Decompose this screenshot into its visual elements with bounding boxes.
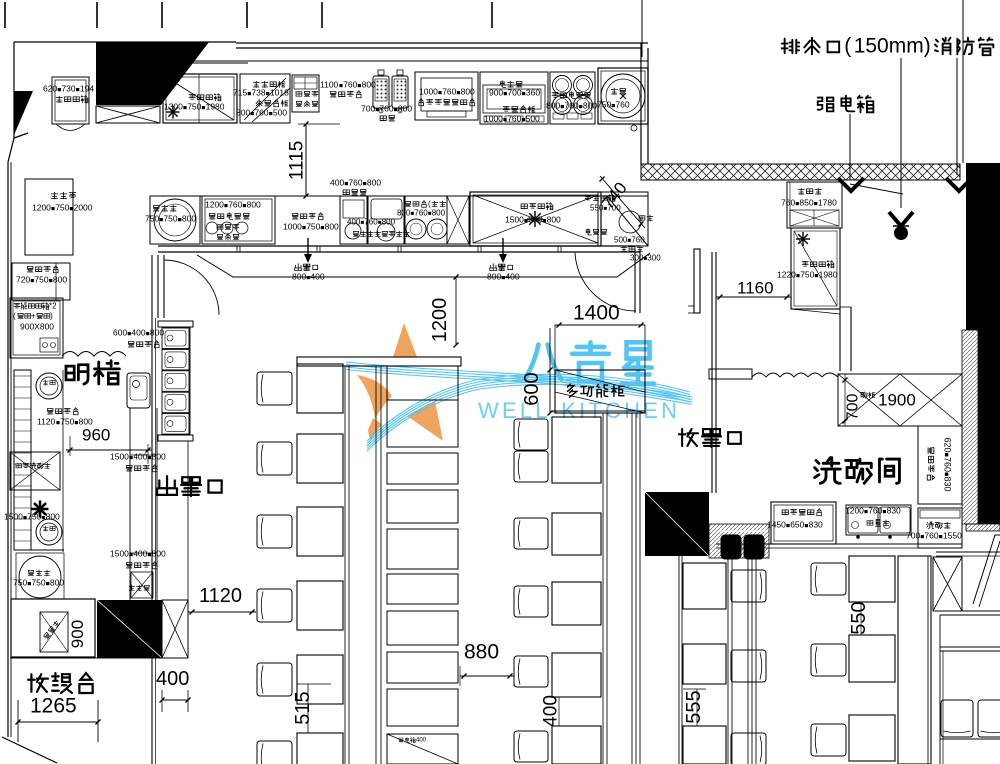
svg-text:760: 760 bbox=[343, 80, 357, 90]
svg-text:400: 400 bbox=[156, 668, 189, 690]
svg-text:760: 760 bbox=[781, 198, 795, 208]
svg-text:760: 760 bbox=[348, 178, 362, 188]
svg-text:400: 400 bbox=[133, 452, 147, 462]
svg-text:760: 760 bbox=[379, 104, 393, 114]
svg-text:1100: 1100 bbox=[320, 80, 339, 90]
svg-text:2000: 2000 bbox=[74, 203, 93, 213]
svg-text:400: 400 bbox=[131, 328, 145, 338]
svg-text:960: 960 bbox=[82, 425, 110, 444]
svg-text:(: ( bbox=[13, 311, 16, 320]
svg-text:500: 500 bbox=[614, 235, 628, 244]
svg-text:760: 760 bbox=[615, 100, 629, 110]
svg-text:620: 620 bbox=[43, 84, 57, 94]
svg-text:600: 600 bbox=[521, 372, 543, 405]
svg-text:800: 800 bbox=[46, 512, 60, 522]
svg-text:1115: 1115 bbox=[287, 141, 308, 180]
svg-text:WELL-KITCHEN: WELL-KITCHEN bbox=[478, 398, 680, 423]
svg-text:800: 800 bbox=[152, 452, 166, 462]
svg-text:1780: 1780 bbox=[818, 198, 837, 208]
svg-text:800: 800 bbox=[398, 104, 412, 114]
svg-text:1200: 1200 bbox=[429, 298, 451, 343]
svg-text:400: 400 bbox=[133, 549, 147, 559]
svg-text:760: 760 bbox=[564, 101, 578, 111]
svg-text:750: 750 bbox=[13, 578, 27, 588]
svg-text:800: 800 bbox=[53, 275, 67, 285]
svg-text:760: 760 bbox=[631, 235, 645, 244]
svg-text:750: 750 bbox=[163, 214, 177, 224]
svg-text:730: 730 bbox=[61, 84, 75, 94]
svg-text:800: 800 bbox=[247, 200, 261, 210]
svg-text:800: 800 bbox=[292, 272, 306, 282]
svg-text:500: 500 bbox=[273, 108, 287, 118]
svg-text:150mm: 150mm bbox=[854, 35, 924, 58]
svg-text:400: 400 bbox=[347, 217, 361, 226]
svg-text:400: 400 bbox=[330, 178, 344, 188]
svg-text:900: 900 bbox=[68, 620, 87, 648]
svg-text:650: 650 bbox=[790, 520, 804, 530]
svg-text:830: 830 bbox=[942, 477, 952, 492]
svg-text:*2: *2 bbox=[49, 301, 57, 310]
svg-text:720: 720 bbox=[16, 275, 30, 285]
svg-text:750: 750 bbox=[597, 100, 611, 110]
svg-text:800: 800 bbox=[397, 208, 411, 217]
svg-text:(: ( bbox=[428, 199, 431, 208]
svg-text:1220: 1220 bbox=[777, 270, 796, 280]
svg-text:760: 760 bbox=[868, 506, 882, 516]
svg-text:900: 900 bbox=[489, 88, 503, 98]
svg-text:850: 850 bbox=[799, 198, 813, 208]
svg-text:830: 830 bbox=[809, 520, 823, 530]
svg-text:800: 800 bbox=[382, 217, 396, 226]
svg-text:1980: 1980 bbox=[206, 102, 225, 112]
svg-text:400: 400 bbox=[416, 738, 427, 744]
svg-text:800: 800 bbox=[583, 101, 597, 111]
svg-text:800: 800 bbox=[362, 80, 376, 90]
svg-text:1500: 1500 bbox=[4, 512, 23, 522]
svg-text:738: 738 bbox=[251, 88, 265, 98]
svg-text:700: 700 bbox=[361, 104, 375, 114]
svg-text:800: 800 bbox=[528, 215, 542, 225]
svg-text:): ) bbox=[50, 311, 53, 320]
svg-text:830: 830 bbox=[887, 506, 901, 516]
svg-text:194: 194 bbox=[80, 84, 94, 94]
svg-text:1300: 1300 bbox=[164, 102, 183, 112]
svg-text:800: 800 bbox=[50, 578, 64, 588]
svg-text:800: 800 bbox=[546, 101, 560, 111]
svg-text:750: 750 bbox=[800, 270, 814, 280]
svg-text:300: 300 bbox=[647, 253, 661, 262]
svg-text:800: 800 bbox=[152, 549, 166, 559]
svg-text:700: 700 bbox=[906, 531, 920, 541]
svg-text:760: 760 bbox=[364, 217, 378, 226]
svg-text:715: 715 bbox=[233, 88, 247, 98]
svg-text:800: 800 bbox=[182, 214, 196, 224]
svg-text:1500: 1500 bbox=[110, 452, 129, 462]
svg-text:800: 800 bbox=[325, 222, 339, 232]
svg-text:800: 800 bbox=[547, 215, 561, 225]
svg-text:800: 800 bbox=[236, 108, 250, 118]
svg-text:750: 750 bbox=[187, 102, 201, 112]
svg-text:1450: 1450 bbox=[767, 520, 786, 530]
svg-text:760: 760 bbox=[924, 531, 938, 541]
svg-text:750: 750 bbox=[34, 275, 48, 285]
svg-text:1000: 1000 bbox=[283, 222, 302, 232]
svg-text:1500: 1500 bbox=[110, 549, 129, 559]
svg-text:1200: 1200 bbox=[845, 506, 864, 516]
svg-text:800: 800 bbox=[487, 272, 501, 282]
svg-text:900X800: 900X800 bbox=[20, 322, 54, 332]
svg-text:400: 400 bbox=[310, 272, 324, 282]
svg-text:): ) bbox=[924, 35, 931, 58]
svg-text:800: 800 bbox=[461, 87, 475, 97]
svg-text:750: 750 bbox=[27, 512, 41, 522]
svg-text:1160: 1160 bbox=[737, 278, 774, 297]
svg-text:760: 760 bbox=[228, 200, 242, 210]
svg-text:800: 800 bbox=[432, 208, 446, 217]
svg-text:1200: 1200 bbox=[32, 203, 51, 213]
svg-text:360: 360 bbox=[526, 88, 540, 98]
svg-text:800: 800 bbox=[367, 178, 381, 188]
svg-text:1120: 1120 bbox=[37, 417, 56, 427]
svg-text:750: 750 bbox=[31, 578, 45, 588]
svg-text:750: 750 bbox=[306, 222, 320, 232]
svg-text:1500: 1500 bbox=[505, 215, 524, 225]
svg-text:1980: 1980 bbox=[819, 270, 838, 280]
svg-text:1000: 1000 bbox=[419, 87, 438, 97]
svg-text:750: 750 bbox=[55, 203, 69, 213]
svg-text:620: 620 bbox=[942, 438, 952, 453]
svg-text:550: 550 bbox=[848, 601, 870, 634]
svg-text:555: 555 bbox=[683, 690, 705, 723]
svg-text:760: 760 bbox=[942, 457, 952, 472]
svg-text:1018: 1018 bbox=[270, 88, 289, 98]
svg-text:1120: 1120 bbox=[199, 585, 242, 607]
svg-text:760: 760 bbox=[414, 208, 428, 217]
svg-text:750: 750 bbox=[60, 417, 74, 427]
svg-text:760: 760 bbox=[254, 108, 268, 118]
svg-text:1900: 1900 bbox=[878, 390, 916, 409]
svg-text:1400: 1400 bbox=[573, 302, 620, 325]
svg-text:400: 400 bbox=[541, 695, 562, 727]
svg-text:760: 760 bbox=[442, 87, 456, 97]
svg-text:1265: 1265 bbox=[30, 695, 77, 718]
svg-text:(: ( bbox=[844, 35, 851, 58]
svg-text:1550: 1550 bbox=[943, 531, 962, 541]
svg-text:300: 300 bbox=[630, 253, 644, 262]
svg-text:515: 515 bbox=[292, 691, 314, 724]
svg-text:400: 400 bbox=[505, 272, 519, 282]
svg-text:880: 880 bbox=[464, 641, 499, 664]
svg-text:+: + bbox=[31, 311, 36, 320]
svg-text:600: 600 bbox=[113, 328, 127, 338]
svg-text:750: 750 bbox=[145, 214, 159, 224]
svg-text:700: 700 bbox=[507, 88, 521, 98]
svg-text:1200: 1200 bbox=[205, 200, 224, 210]
svg-text:700: 700 bbox=[845, 394, 862, 421]
